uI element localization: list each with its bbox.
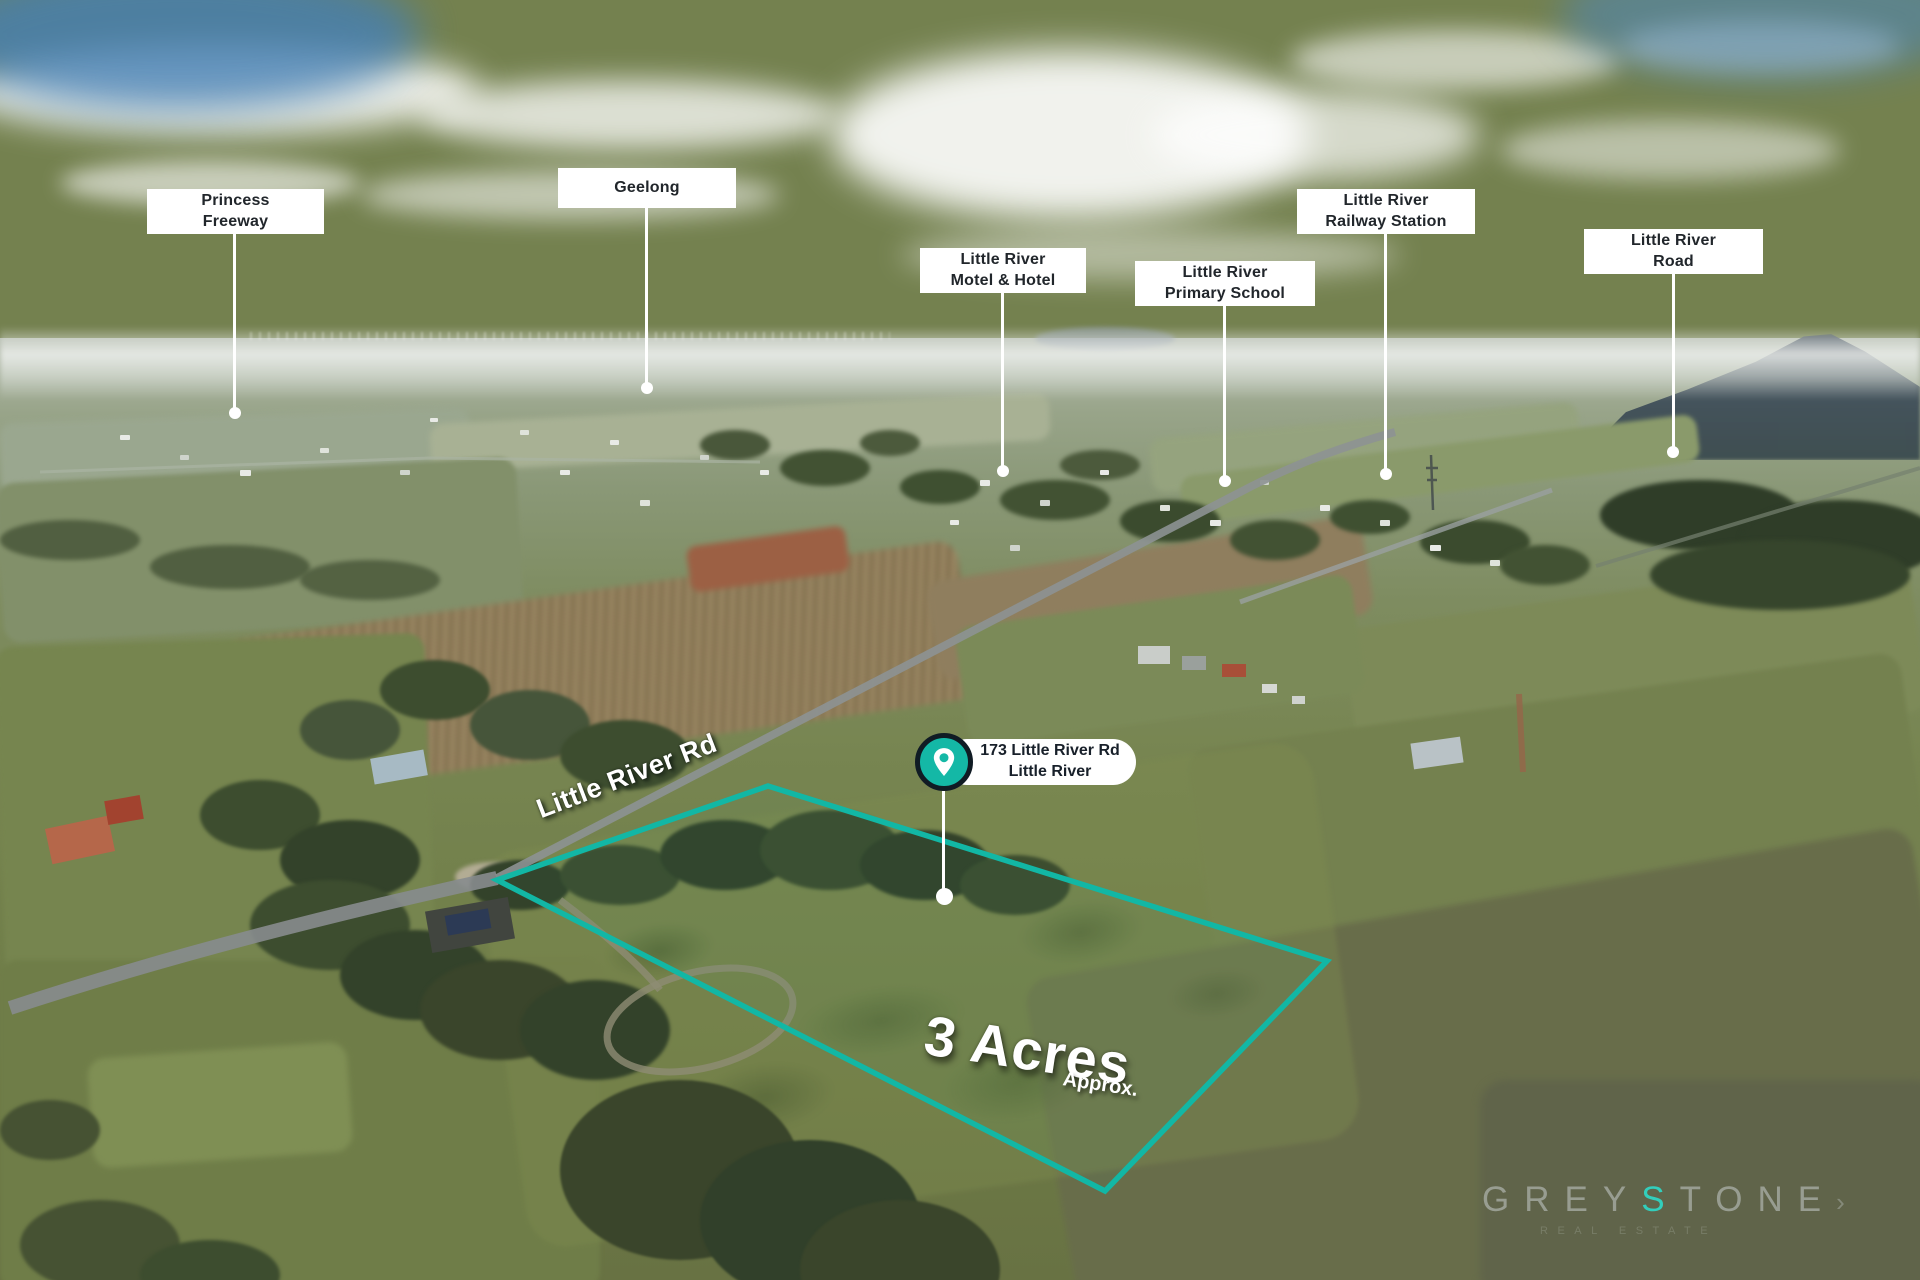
brand-prefix: GREY — [1482, 1180, 1641, 1219]
label-little-river-road: Little River Road — [1584, 229, 1763, 274]
leader-geelong — [645, 208, 648, 383]
label-little-river-railway-station: Little River Railway Station — [1297, 189, 1475, 234]
property-address-line2: Little River — [980, 762, 1120, 783]
label-text: Railway Station — [1325, 212, 1446, 232]
property-pin-badge — [915, 733, 973, 791]
leader-property-pin — [942, 791, 945, 889]
label-text: Primary School — [1165, 284, 1285, 304]
label-text: Little River — [1343, 191, 1428, 211]
label-text: Freeway — [203, 212, 268, 232]
label-text: Princess — [201, 191, 269, 211]
leader-little-river-motel-hotel — [1001, 293, 1004, 466]
leader-little-river-primary-school — [1223, 306, 1226, 476]
dot-little-river-primary-school — [1219, 475, 1231, 487]
label-text: Little River — [1182, 263, 1267, 283]
label-princess-freeway: Princess Freeway — [147, 189, 324, 234]
label-text: Little River — [960, 250, 1045, 270]
agency-logo: GREYSTONE› — [1482, 1180, 1845, 1220]
chevron-right-icon: › — [1836, 1187, 1845, 1217]
label-text: Little River — [1631, 231, 1716, 251]
agency-watermark: GREYSTONE› REAL ESTATE — [1482, 1180, 1845, 1237]
dot-princess-freeway — [229, 407, 241, 419]
scenery-element — [940, 753, 949, 762]
map-pin-icon — [931, 747, 957, 777]
dot-little-river-road — [1667, 446, 1679, 458]
agency-tagline: REAL ESTATE — [1540, 1225, 1845, 1237]
leader-little-river-road — [1672, 274, 1675, 447]
leader-little-river-railway-station — [1384, 234, 1387, 469]
leader-princess-freeway — [233, 234, 236, 408]
property-address-line1: 173 Little River Rd — [980, 741, 1120, 762]
label-text: Geelong — [614, 178, 679, 198]
dot-geelong — [641, 382, 653, 394]
label-little-river-primary-school: Little River Primary School — [1135, 261, 1315, 306]
label-little-river-motel-hotel: Little River Motel & Hotel — [920, 248, 1086, 293]
property-boundary-polygon — [497, 786, 1327, 1191]
brand-accent-letter: S — [1641, 1180, 1679, 1219]
label-geelong: Geelong — [558, 168, 736, 208]
aerial-property-photo: Princess Freeway Geelong Little River Mo… — [0, 0, 1920, 1280]
label-text: Motel & Hotel — [951, 271, 1056, 291]
dot-little-river-motel-hotel — [997, 465, 1009, 477]
dot-property-pin — [936, 888, 953, 905]
label-text: Road — [1653, 252, 1694, 272]
dot-little-river-railway-station — [1380, 468, 1392, 480]
brand-suffix: TONE — [1680, 1180, 1837, 1219]
